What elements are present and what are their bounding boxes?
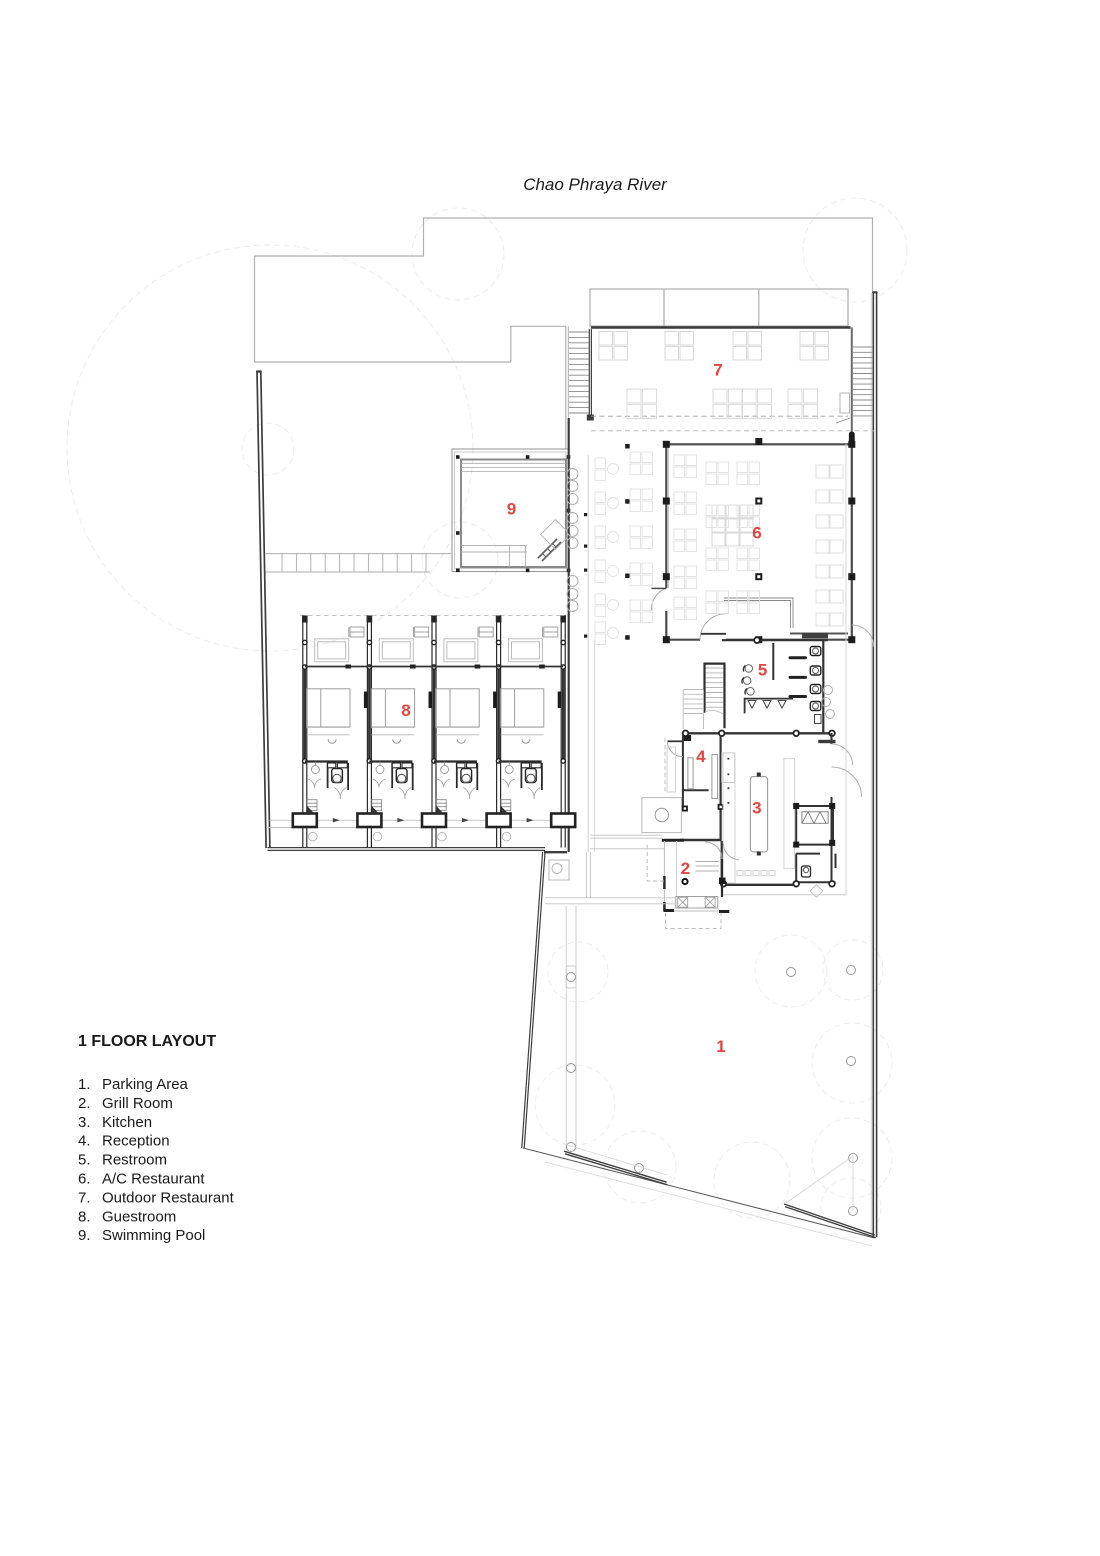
svg-text:5.: 5. bbox=[78, 1152, 91, 1169]
svg-text:3: 3 bbox=[752, 799, 761, 818]
svg-text:Outdoor Restaurant: Outdoor Restaurant bbox=[102, 1189, 235, 1206]
svg-text:8.: 8. bbox=[78, 1208, 91, 1225]
svg-text:9.: 9. bbox=[78, 1227, 91, 1244]
svg-text:6: 6 bbox=[752, 524, 761, 543]
svg-text:8: 8 bbox=[401, 701, 410, 720]
svg-text:1: 1 bbox=[716, 1037, 725, 1056]
svg-text:7.: 7. bbox=[78, 1189, 91, 1206]
svg-text:3.: 3. bbox=[78, 1114, 91, 1131]
svg-text:7: 7 bbox=[713, 361, 722, 380]
svg-text:Reception: Reception bbox=[102, 1133, 170, 1150]
svg-text:Guestroom: Guestroom bbox=[102, 1208, 176, 1225]
svg-text:Grill Room: Grill Room bbox=[102, 1095, 173, 1112]
svg-text:5: 5 bbox=[758, 661, 767, 680]
svg-text:Parking Area: Parking Area bbox=[102, 1076, 189, 1093]
svg-text:2.: 2. bbox=[78, 1095, 91, 1112]
svg-text:Swimming Pool: Swimming Pool bbox=[102, 1227, 205, 1244]
svg-text:2: 2 bbox=[681, 859, 690, 878]
svg-text:4: 4 bbox=[696, 747, 706, 766]
svg-text:A/C Restaurant: A/C Restaurant bbox=[102, 1171, 205, 1188]
svg-text:1 FLOOR LAYOUT: 1 FLOOR LAYOUT bbox=[78, 1033, 216, 1050]
svg-text:1.: 1. bbox=[78, 1076, 91, 1093]
svg-text:Restroom: Restroom bbox=[102, 1152, 167, 1169]
svg-text:6.: 6. bbox=[78, 1171, 91, 1188]
svg-text:4.: 4. bbox=[78, 1133, 91, 1150]
svg-text:Kitchen: Kitchen bbox=[102, 1114, 152, 1131]
svg-text:Chao Phraya River: Chao Phraya River bbox=[523, 175, 668, 194]
svg-text:9: 9 bbox=[507, 500, 516, 519]
